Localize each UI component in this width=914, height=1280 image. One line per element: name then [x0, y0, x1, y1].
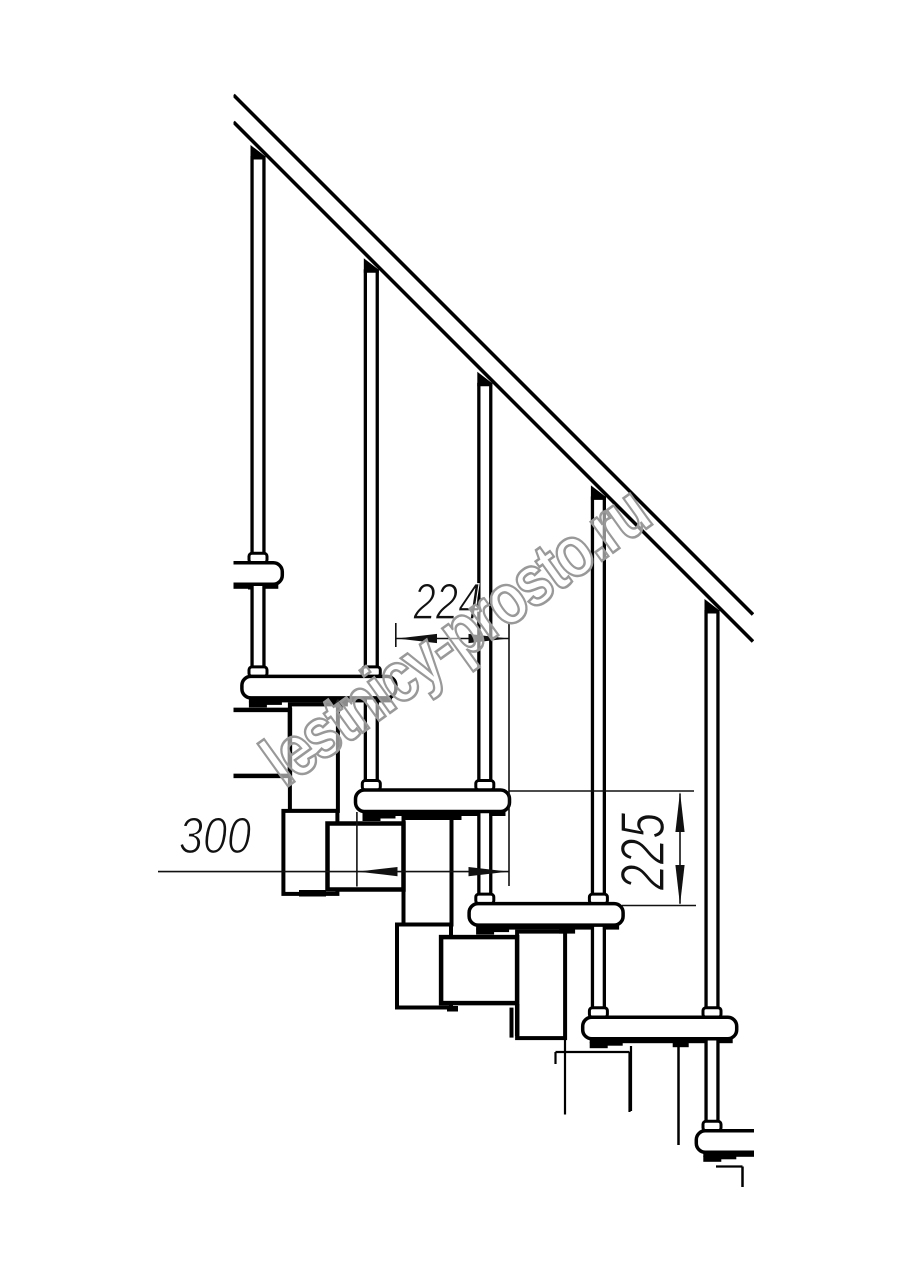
svg-text:225: 225: [607, 812, 677, 891]
svg-text:300: 300: [179, 808, 251, 865]
